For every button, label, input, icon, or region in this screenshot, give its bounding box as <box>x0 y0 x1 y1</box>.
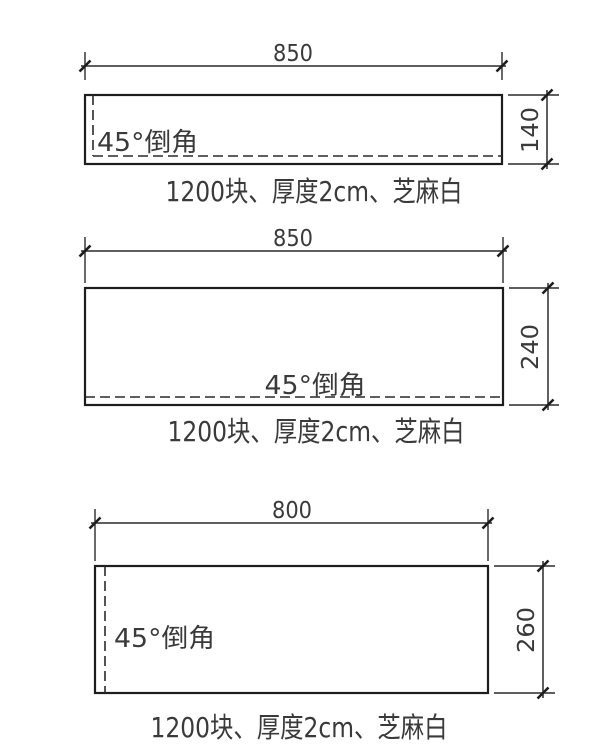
height-dim-label: 260 <box>514 607 540 653</box>
stone-panel-drawing: 850 45°倒角 140 1200块、厚度2cm、芝麻白 850 <box>0 0 602 755</box>
drawing-sheet: 850 45°倒角 140 1200块、厚度2cm、芝麻白 850 <box>0 0 602 755</box>
height-dim-label: 240 <box>518 324 544 370</box>
chamfer-label: 45°倒角 <box>97 128 198 158</box>
panel-2-caption: 1200块、厚度2cm、芝麻白 <box>168 415 465 448</box>
panel-1-caption: 1200块、厚度2cm、芝麻白 <box>166 175 463 208</box>
width-dim-label: 850 <box>273 226 313 252</box>
chamfer-label: 45°倒角 <box>265 371 366 401</box>
width-dim-label: 800 <box>272 498 312 524</box>
height-dim-label: 140 <box>518 107 544 153</box>
chamfer-label: 45°倒角 <box>114 624 215 654</box>
width-dim-label: 850 <box>273 41 313 67</box>
panel-3-caption: 1200块、厚度2cm、芝麻白 <box>151 711 448 744</box>
